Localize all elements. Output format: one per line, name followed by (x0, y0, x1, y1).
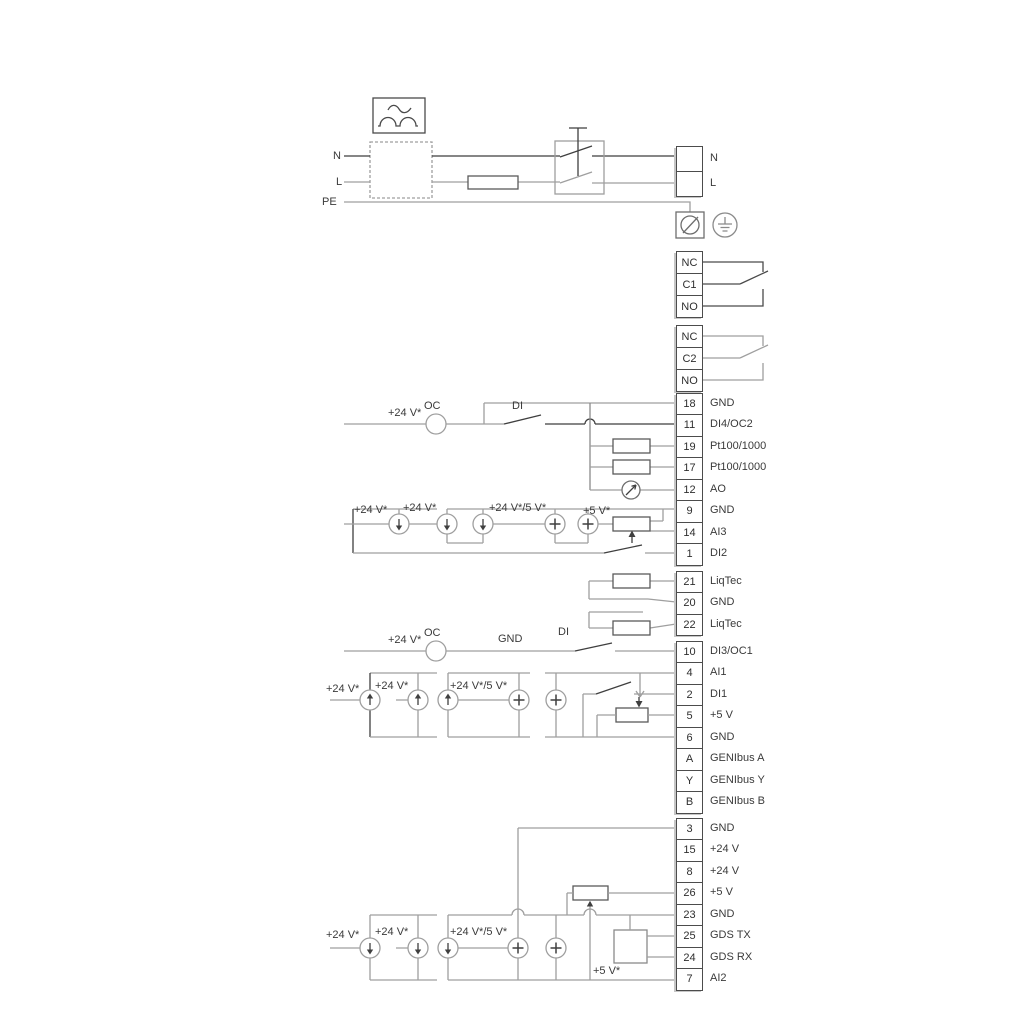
main-switch-icon (555, 128, 604, 194)
terminal-label-+5-V: +5 V (710, 882, 733, 904)
terminal-Y: Y (676, 770, 703, 793)
terminal-label-GND: GND (710, 592, 734, 614)
terminal-label-Pt100/1000: Pt100/1000 (710, 457, 766, 479)
terminal-21: 21 (676, 571, 703, 594)
io-terminals-top: 18GND11DI4/OC219Pt100/100017Pt100/100012… (676, 393, 703, 565)
terminal-23: 23 (676, 904, 703, 927)
pt100-sensor-circuit (590, 439, 676, 474)
terminal-2: 2 (676, 684, 703, 707)
terminal-8: 8 (676, 861, 703, 884)
terminal-label-+24-V: +24 V (710, 839, 739, 861)
ao-meter-circuit (590, 481, 676, 499)
gnd-label: GND (498, 633, 522, 646)
mains-terminal-block: NL (676, 146, 703, 196)
terminal-15: 15 (676, 839, 703, 862)
terminal-label-+24-V: +24 V (710, 861, 739, 883)
terminal-label-AI3: AI3 (710, 522, 727, 544)
wiring-diagram: N L PE +24 V* OC DI +24 V* +24 V* +24 V*… (0, 0, 1024, 1024)
terminal-label-DI4/OC2: DI4/OC2 (710, 414, 753, 436)
terminal-1: 1 (676, 543, 703, 566)
gds-supply-row-3 (330, 828, 676, 980)
terminal-label-DI2: DI2 (710, 543, 727, 565)
terminal-label-DI1: DI1 (710, 684, 727, 706)
terminal-10: 10 (676, 641, 703, 664)
terminal-C2: C2 (676, 347, 703, 370)
terminal-label-AO: AO (710, 479, 726, 501)
terminal-7: 7 (676, 968, 703, 991)
terminal-A: A (676, 748, 703, 771)
open-collector-icon (426, 414, 446, 434)
terminal-label-LiqTec: LiqTec (710, 571, 742, 593)
terminal-label-GENIbus-B: GENIbus B (710, 791, 765, 813)
terminal-label-Pt100/1000: Pt100/1000 (710, 436, 766, 458)
supply-5v-label: +5 V* (583, 505, 610, 518)
relay-2-contact (703, 336, 768, 380)
terminal-17: 17 (676, 457, 703, 480)
terminal-label-GDS-TX: GDS TX (710, 925, 751, 947)
power-supply-box (370, 142, 432, 198)
open-collector-icon (426, 641, 446, 661)
supply-24v-5v-label: +24 V*/5 V* (450, 680, 507, 693)
terminal-label-GND: GND (710, 727, 734, 749)
terminal-22: 22 (676, 614, 703, 637)
liqtec-sensor-circuit (589, 574, 676, 635)
di-label: DI (512, 400, 523, 413)
potentiometer-icon (613, 517, 650, 531)
terminal-18: 18 (676, 393, 703, 416)
pe-left-label: PE (322, 196, 337, 209)
terminal-label-GND: GND (710, 818, 734, 840)
oc-label: OC (424, 627, 441, 640)
terminal-label-+5-V: +5 V (710, 705, 733, 727)
supply-5v-label: +5 V* (593, 965, 620, 978)
supply-24v-label: +24 V* (326, 683, 359, 696)
terminal-25: 25 (676, 925, 703, 948)
io-terminals-middle: 10DI3/OC14AI12DI15+5 V6GNDAGENIbus AYGEN… (676, 641, 703, 813)
terminal-3: 3 (676, 818, 703, 841)
fuse-icon (468, 176, 518, 189)
terminal-label-GND: GND (710, 904, 734, 926)
supply-24v-label: +24 V* (354, 504, 387, 517)
terminal-6: 6 (676, 727, 703, 750)
terminal-label-L: L (710, 171, 716, 196)
terminal-26: 26 (676, 882, 703, 905)
supply-24v-label: +24 V* (375, 926, 408, 939)
pe-screw-terminal-icon (676, 212, 704, 238)
ac-dc-converter-icon (373, 98, 425, 133)
supply-24v-5v-label: +24 V*/5 V* (450, 926, 507, 939)
terminal-4: 4 (676, 662, 703, 685)
supply-24v-label: +24 V* (375, 680, 408, 693)
resistor-icon (613, 621, 650, 635)
supply-24v-label: +24 V* (388, 634, 421, 647)
terminal-12: 12 (676, 479, 703, 502)
terminal-B: B (676, 791, 703, 814)
terminal-label-AI2: AI2 (710, 968, 727, 990)
resistor-icon (613, 439, 650, 453)
terminal-20: 20 (676, 592, 703, 615)
terminal-C1: C1 (676, 273, 703, 296)
terminal-24: 24 (676, 947, 703, 970)
relay-2-terminals: NCC2NO (676, 325, 703, 391)
supply-24v-5v-label: +24 V*/5 V* (489, 502, 546, 515)
terminal-9: 9 (676, 500, 703, 523)
supply-24v-label: +24 V* (388, 407, 421, 420)
supply-24v-label: +24 V* (403, 502, 436, 515)
liqtec-terminals: 21LiqTec20GND22LiqTec (676, 571, 703, 636)
terminal-label-N: N (710, 146, 718, 171)
terminal-NO: NO (676, 295, 703, 318)
terminal-label-GENIbus-A: GENIbus A (710, 748, 764, 770)
oc-label: OC (424, 400, 441, 413)
potentiometer-icon (616, 708, 648, 722)
relay-1-contact (703, 262, 768, 306)
earth-ground-icon (713, 213, 737, 237)
terminal-NC: NC (676, 325, 703, 348)
terminal-label-AI1: AI1 (710, 662, 727, 684)
terminal-label-GENIbus-Y: GENIbus Y (710, 770, 765, 792)
resistor-icon (613, 460, 650, 474)
terminal-5: 5 (676, 705, 703, 728)
relay-1-terminals: NCC1NO (676, 251, 703, 317)
terminal-19: 19 (676, 436, 703, 459)
mains-wires (344, 146, 690, 212)
terminal-label-GND: GND (710, 500, 734, 522)
resistor-icon (613, 574, 650, 588)
l-left-label: L (336, 176, 342, 189)
terminal-label-GND: GND (710, 393, 734, 415)
terminal-11: 11 (676, 414, 703, 437)
terminal-14: 14 (676, 522, 703, 545)
io-terminals-bottom: 3GND15+24 V8+24 V26+5 V23GND25GDS TX24GD… (676, 818, 703, 990)
potentiometer-icon (573, 886, 608, 900)
n-left-label: N (333, 150, 341, 163)
terminal-L (676, 171, 703, 197)
gds-sensor-icon (614, 930, 647, 963)
terminal-NC: NC (676, 251, 703, 274)
terminal-label-GDS-RX: GDS RX (710, 947, 752, 969)
terminal-label-LiqTec: LiqTec (710, 614, 742, 636)
terminal-N (676, 146, 703, 172)
terminal-label-DI3/OC1: DI3/OC1 (710, 641, 753, 663)
analog-supply-row-1 (344, 509, 676, 553)
terminal-NO: NO (676, 369, 703, 392)
supply-24v-label: +24 V* (326, 929, 359, 942)
di-label: DI (558, 626, 569, 639)
